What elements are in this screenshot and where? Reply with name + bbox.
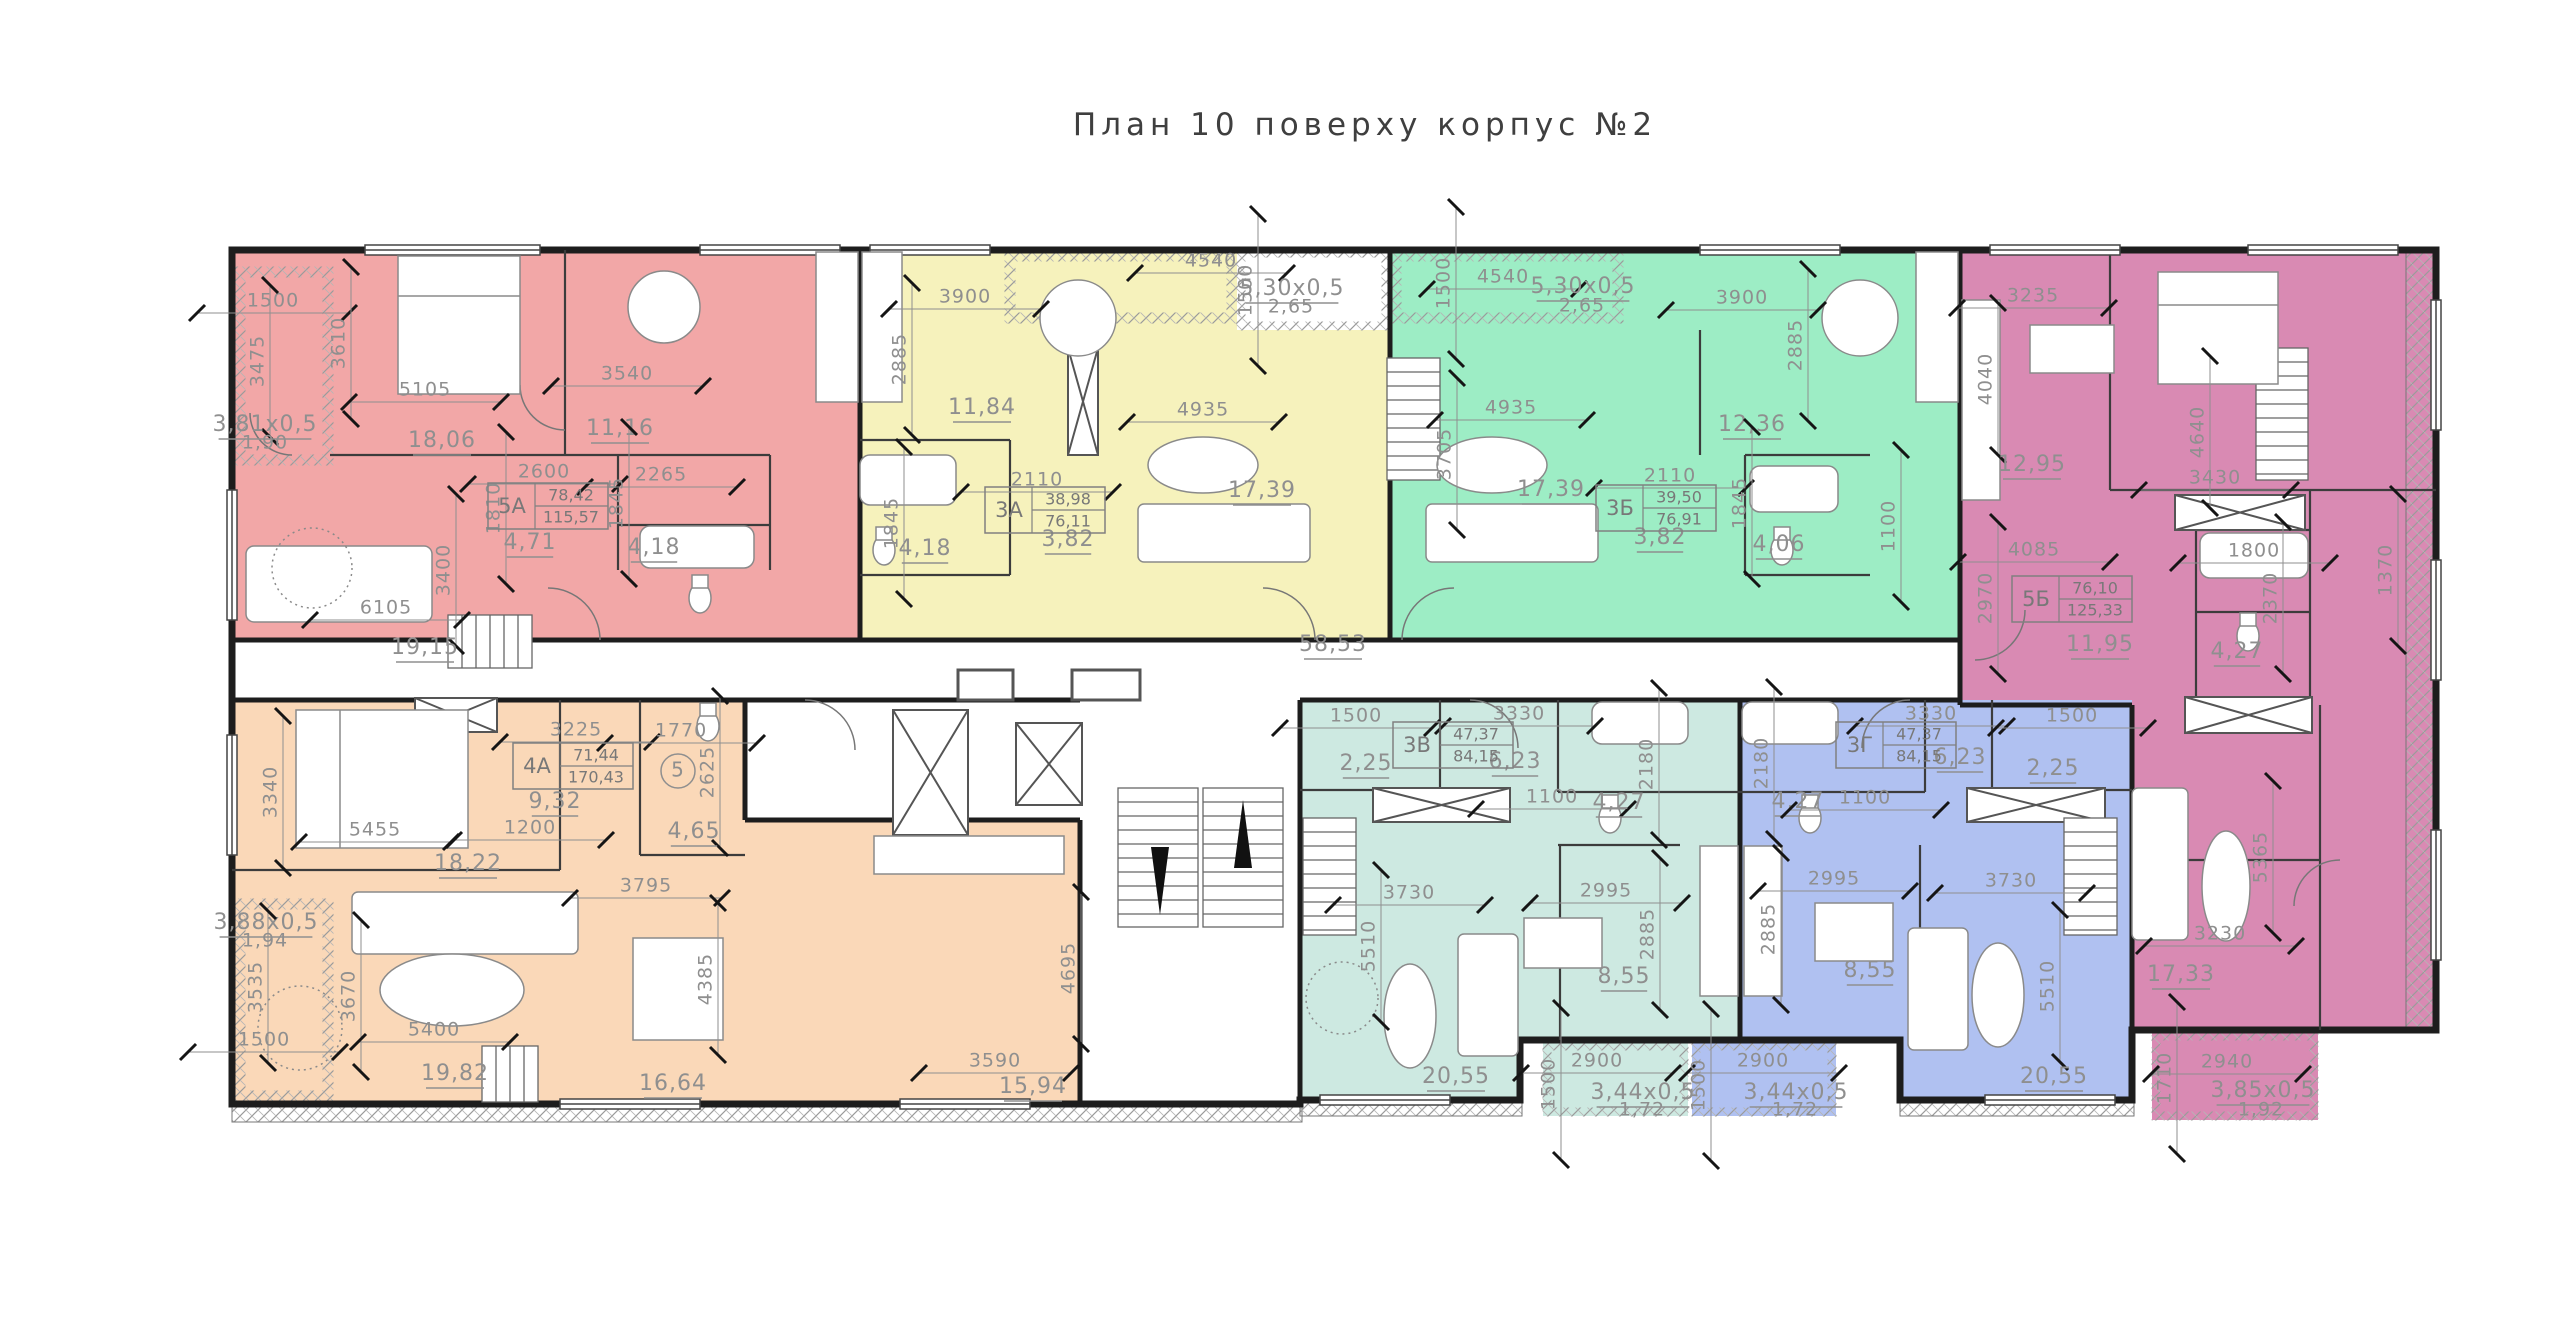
svg-text:4,06: 4,06: [1753, 532, 1806, 557]
svg-text:6105: 6105: [360, 597, 412, 619]
svg-text:16,64: 16,64: [639, 1071, 707, 1096]
oval-bathtub: [1384, 964, 1436, 1068]
room-area-label: 19,82: [421, 1061, 489, 1088]
room-area-label: 11,84: [948, 395, 1016, 422]
svg-text:3235: 3235: [2007, 285, 2059, 307]
room-area-label: 1,72: [1619, 1099, 1665, 1121]
svg-text:18,22: 18,22: [434, 851, 502, 876]
svg-text:4935: 4935: [1485, 397, 1537, 419]
apartment-regions: [232, 247, 2436, 1120]
svg-text:3330: 3330: [1905, 703, 1957, 725]
room-area-label: 4,27: [1772, 789, 1825, 816]
svg-text:76,91: 76,91: [1656, 510, 1702, 529]
svg-text:1845: 1845: [606, 477, 628, 529]
window: [1700, 245, 1840, 255]
svg-text:8,55: 8,55: [1598, 964, 1651, 989]
room-area-label: 17,39: [1228, 478, 1296, 505]
wardrobe: [1373, 788, 1510, 822]
svg-text:3540: 3540: [601, 363, 653, 385]
svg-text:76,11: 76,11: [1045, 512, 1091, 531]
plan-title: План 10 поверху корпус №2: [1073, 107, 1657, 143]
svg-text:58,53: 58,53: [1299, 632, 1367, 657]
sofa: [1138, 504, 1310, 562]
svg-text:3Б: 3Б: [1606, 496, 1634, 520]
svg-text:15,94: 15,94: [999, 1074, 1067, 1099]
vent-shaft: [1068, 348, 1098, 455]
svg-text:9,32: 9,32: [529, 789, 582, 814]
bed: [2158, 272, 2278, 384]
dining-table: [1815, 903, 1893, 961]
svg-text:47,37: 47,37: [1896, 725, 1942, 744]
svg-text:3730: 3730: [1985, 870, 2037, 892]
dining-table: [1524, 918, 1602, 968]
room-area-label: 8,55: [1844, 958, 1897, 985]
elevator-shaft: [1016, 723, 1082, 805]
staircase: [1303, 818, 1356, 935]
room-area-label: 1,92: [2238, 1099, 2284, 1121]
room-area-label: 1,90: [242, 432, 288, 454]
svg-text:3330: 3330: [1493, 703, 1545, 725]
svg-text:19,82: 19,82: [421, 1061, 489, 1086]
svg-text:170,43: 170,43: [568, 768, 624, 787]
window: [227, 490, 237, 620]
svg-text:2110: 2110: [1644, 465, 1696, 487]
svg-text:5510: 5510: [1358, 920, 1380, 972]
rug: [380, 954, 524, 1026]
svg-text:3А: 3А: [995, 498, 1023, 522]
room-area-label: 12,95: [1998, 452, 2066, 479]
svg-text:2900: 2900: [1737, 1050, 1789, 1072]
room-area-label: 20,55: [2020, 1064, 2088, 1091]
svg-text:12,95: 12,95: [1998, 452, 2066, 477]
svg-text:2995: 2995: [1580, 880, 1632, 902]
room-area-label: 1,94: [242, 930, 288, 952]
svg-text:1,92: 1,92: [2238, 1099, 2284, 1121]
room-area-label: 4,06: [1753, 532, 1806, 559]
window: [2431, 560, 2441, 680]
room-area-label: 11,95: [2066, 632, 2134, 659]
svg-text:18,06: 18,06: [408, 428, 476, 453]
window: [560, 1099, 700, 1109]
svg-text:3730: 3730: [1383, 882, 1435, 904]
elevator-shaft: [893, 710, 968, 835]
svg-text:3340: 3340: [260, 766, 282, 818]
wardrobe: [1967, 788, 2105, 822]
svg-text:1,94: 1,94: [242, 930, 288, 952]
svg-text:17,39: 17,39: [1517, 477, 1585, 502]
svg-text:1500: 1500: [1538, 1058, 1560, 1110]
svg-text:4,65: 4,65: [668, 819, 721, 844]
svg-text:3795: 3795: [620, 875, 672, 897]
svg-text:1500: 1500: [238, 1029, 290, 1051]
floor-plan-canvas: План 10 поверху корпус №2: [0, 0, 2560, 1338]
svg-text:3230: 3230: [2194, 923, 2246, 945]
svg-text:11,84: 11,84: [948, 395, 1016, 420]
room-area-label: 4,65: [668, 819, 721, 846]
window: [2248, 245, 2398, 255]
svg-text:1845: 1845: [1729, 477, 1751, 529]
svg-text:2940: 2940: [2201, 1051, 2253, 1073]
svg-text:3В: 3В: [1403, 733, 1431, 757]
round-table: [1822, 280, 1898, 356]
svg-text:2885: 2885: [1758, 903, 1780, 955]
room-area-label: 1,72: [1772, 1099, 1818, 1121]
window: [2431, 300, 2441, 430]
room-area-label: 19,15: [391, 635, 459, 662]
svg-text:2900: 2900: [1571, 1050, 1623, 1072]
svg-text:1500: 1500: [247, 290, 299, 312]
sofa: [352, 892, 578, 954]
svg-text:3535: 3535: [245, 961, 267, 1013]
room-area-label: 16,64: [639, 1071, 707, 1098]
svg-text:5365: 5365: [2250, 831, 2272, 883]
svg-text:19,15: 19,15: [391, 635, 459, 660]
svg-text:1500: 1500: [1688, 1059, 1710, 1111]
svg-text:76,10: 76,10: [2072, 579, 2118, 598]
svg-text:1500: 1500: [1433, 257, 1455, 309]
svg-text:20,55: 20,55: [1422, 1064, 1490, 1089]
kitchen-counter: [1916, 252, 1958, 402]
wardrobe: [2185, 697, 2312, 733]
lobby-pillar: [958, 670, 1013, 700]
kitchen-counter: [816, 252, 858, 402]
svg-text:5510: 5510: [2037, 960, 2059, 1012]
svg-text:3610: 3610: [328, 317, 350, 369]
room-area-label: 8,55: [1598, 964, 1651, 991]
toilet: [689, 575, 711, 613]
room-area-label: 4,27: [2211, 639, 2264, 666]
room-area-label: 4,27: [1593, 790, 1646, 817]
room-area-label: 20,55: [1422, 1064, 1490, 1091]
oval-bathtub: [1972, 943, 2024, 1047]
room-area-label: 15,94: [999, 1074, 1067, 1101]
svg-text:84,15: 84,15: [1896, 747, 1942, 766]
svg-text:17,39: 17,39: [1228, 478, 1296, 503]
svg-text:78,42: 78,42: [548, 486, 594, 505]
svg-text:2995: 2995: [1808, 868, 1860, 890]
round-table: [628, 271, 700, 343]
svg-text:2885: 2885: [1637, 908, 1659, 960]
svg-text:4385: 4385: [695, 953, 717, 1005]
window: [227, 735, 237, 855]
svg-text:4540: 4540: [1185, 250, 1237, 272]
room-area-label: 3,82: [1042, 527, 1095, 554]
svg-text:1770: 1770: [655, 720, 707, 742]
svg-text:2180: 2180: [1751, 737, 1773, 789]
svg-text:5: 5: [671, 758, 685, 782]
svg-text:1710: 1710: [2154, 1052, 2176, 1104]
room-area-label: 9,32: [529, 789, 582, 816]
svg-text:2625: 2625: [697, 746, 719, 798]
svg-text:115,57: 115,57: [543, 508, 599, 527]
lobby-pillar: [1072, 670, 1140, 700]
svg-text:1100: 1100: [1526, 786, 1578, 808]
room-area-label: 2,65: [1559, 295, 1605, 317]
svg-text:17,33: 17,33: [2147, 962, 2215, 987]
window: [365, 245, 540, 255]
svg-text:2,65: 2,65: [1559, 295, 1605, 317]
room-area-label: 18,22: [434, 851, 502, 878]
svg-text:3,82: 3,82: [1634, 525, 1687, 550]
svg-text:84,15: 84,15: [1453, 747, 1499, 766]
svg-text:3225: 3225: [550, 719, 602, 741]
svg-text:11,95: 11,95: [2066, 632, 2134, 657]
svg-text:39,50: 39,50: [1656, 488, 1702, 507]
svg-text:3705: 3705: [1434, 428, 1456, 480]
svg-text:2885: 2885: [889, 333, 911, 385]
svg-text:3,82: 3,82: [1042, 527, 1095, 552]
window: [2431, 830, 2441, 960]
room-area-label: 2,25: [1340, 751, 1393, 778]
kitchen-counter: [1700, 846, 1738, 996]
svg-text:3400: 3400: [433, 544, 455, 596]
bathtub: [1750, 466, 1838, 512]
window: [1985, 1095, 2115, 1105]
svg-text:3900: 3900: [939, 286, 991, 308]
svg-text:3430: 3430: [2189, 467, 2241, 489]
svg-text:5А: 5А: [498, 494, 526, 518]
svg-text:3670: 3670: [338, 970, 360, 1022]
staircase: [482, 1046, 538, 1102]
svg-text:38,98: 38,98: [1045, 490, 1091, 509]
svg-text:4085: 4085: [2008, 539, 2060, 561]
room-area-label: 18,06: [408, 428, 476, 455]
staircase: [2064, 818, 2117, 935]
svg-text:20,55: 20,55: [2020, 1064, 2088, 1089]
svg-text:1800: 1800: [2228, 540, 2280, 562]
svg-text:4695: 4695: [1058, 942, 1080, 994]
svg-text:71,44: 71,44: [573, 746, 619, 765]
svg-text:5455: 5455: [349, 819, 401, 841]
room-area-label: 58,53: [1299, 632, 1367, 659]
svg-text:4,18: 4,18: [899, 536, 952, 561]
svg-text:125,33: 125,33: [2067, 601, 2123, 620]
room-area-label: 17,33: [2147, 962, 2215, 989]
sofa: [1458, 934, 1518, 1056]
svg-text:1500: 1500: [1330, 705, 1382, 727]
bed: [398, 256, 520, 394]
svg-text:2180: 2180: [1636, 738, 1658, 790]
room-area-label: 2,25: [2027, 756, 2080, 783]
sofa: [2132, 788, 2188, 940]
svg-text:5105: 5105: [399, 379, 451, 401]
svg-text:5Б: 5Б: [2022, 587, 2050, 611]
svg-text:5400: 5400: [408, 1019, 460, 1041]
svg-text:3475: 3475: [247, 335, 269, 387]
room-area-label: 4,18: [628, 535, 681, 562]
sofa: [1908, 928, 1968, 1050]
svg-text:4040: 4040: [1975, 353, 1997, 405]
svg-text:4,18: 4,18: [628, 535, 681, 560]
svg-text:1,90: 1,90: [242, 432, 288, 454]
sofa: [1426, 504, 1598, 562]
svg-text:1100: 1100: [1839, 787, 1891, 809]
round-table: [1040, 280, 1116, 356]
floor-plan-page: План 10 поверху корпус №2: [0, 0, 2560, 1338]
svg-text:2970: 2970: [1975, 572, 1997, 624]
window: [1320, 1095, 1450, 1105]
svg-text:2,65: 2,65: [1268, 296, 1314, 318]
svg-text:4,71: 4,71: [504, 530, 557, 555]
svg-text:4540: 4540: [1477, 266, 1529, 288]
dining-table: [2030, 325, 2114, 373]
bathtub: [860, 455, 956, 505]
svg-text:47,37: 47,37: [1453, 725, 1499, 744]
svg-text:4935: 4935: [1177, 399, 1229, 421]
kitchen-counter: [874, 836, 1064, 874]
room-area-label: 17,39: [1517, 477, 1585, 504]
svg-text:8,55: 8,55: [1844, 958, 1897, 983]
svg-text:1,72: 1,72: [1619, 1099, 1665, 1121]
svg-text:3Г: 3Г: [1847, 733, 1873, 757]
svg-text:2600: 2600: [518, 461, 570, 483]
svg-text:3590: 3590: [969, 1050, 1021, 1072]
svg-text:4А: 4А: [523, 754, 551, 778]
bathtub: [1592, 702, 1688, 744]
svg-text:2,25: 2,25: [2027, 756, 2080, 781]
svg-text:4,27: 4,27: [2211, 639, 2264, 664]
room-area-label: 2,65: [1268, 296, 1314, 318]
svg-text:1,72: 1,72: [1772, 1099, 1818, 1121]
svg-text:4,27: 4,27: [1593, 790, 1646, 815]
svg-text:1200: 1200: [504, 817, 556, 839]
room-area-label: 4,18: [899, 536, 952, 563]
svg-text:1500: 1500: [2046, 705, 2098, 727]
svg-text:11,16: 11,16: [586, 416, 654, 441]
svg-text:3900: 3900: [1716, 287, 1768, 309]
svg-text:2885: 2885: [1785, 319, 1807, 371]
room-area-label: 3,82: [1634, 525, 1687, 552]
window: [1990, 245, 2120, 255]
svg-text:1845: 1845: [881, 497, 903, 549]
svg-text:1100: 1100: [1878, 500, 1900, 552]
svg-text:2,25: 2,25: [1340, 751, 1393, 776]
svg-text:1370: 1370: [2375, 544, 2397, 596]
room-area-label: 4,71: [504, 530, 557, 557]
staircase: [1387, 358, 1440, 480]
svg-text:4640: 4640: [2187, 406, 2209, 458]
svg-text:2370: 2370: [2260, 572, 2282, 624]
svg-text:2265: 2265: [635, 464, 687, 486]
